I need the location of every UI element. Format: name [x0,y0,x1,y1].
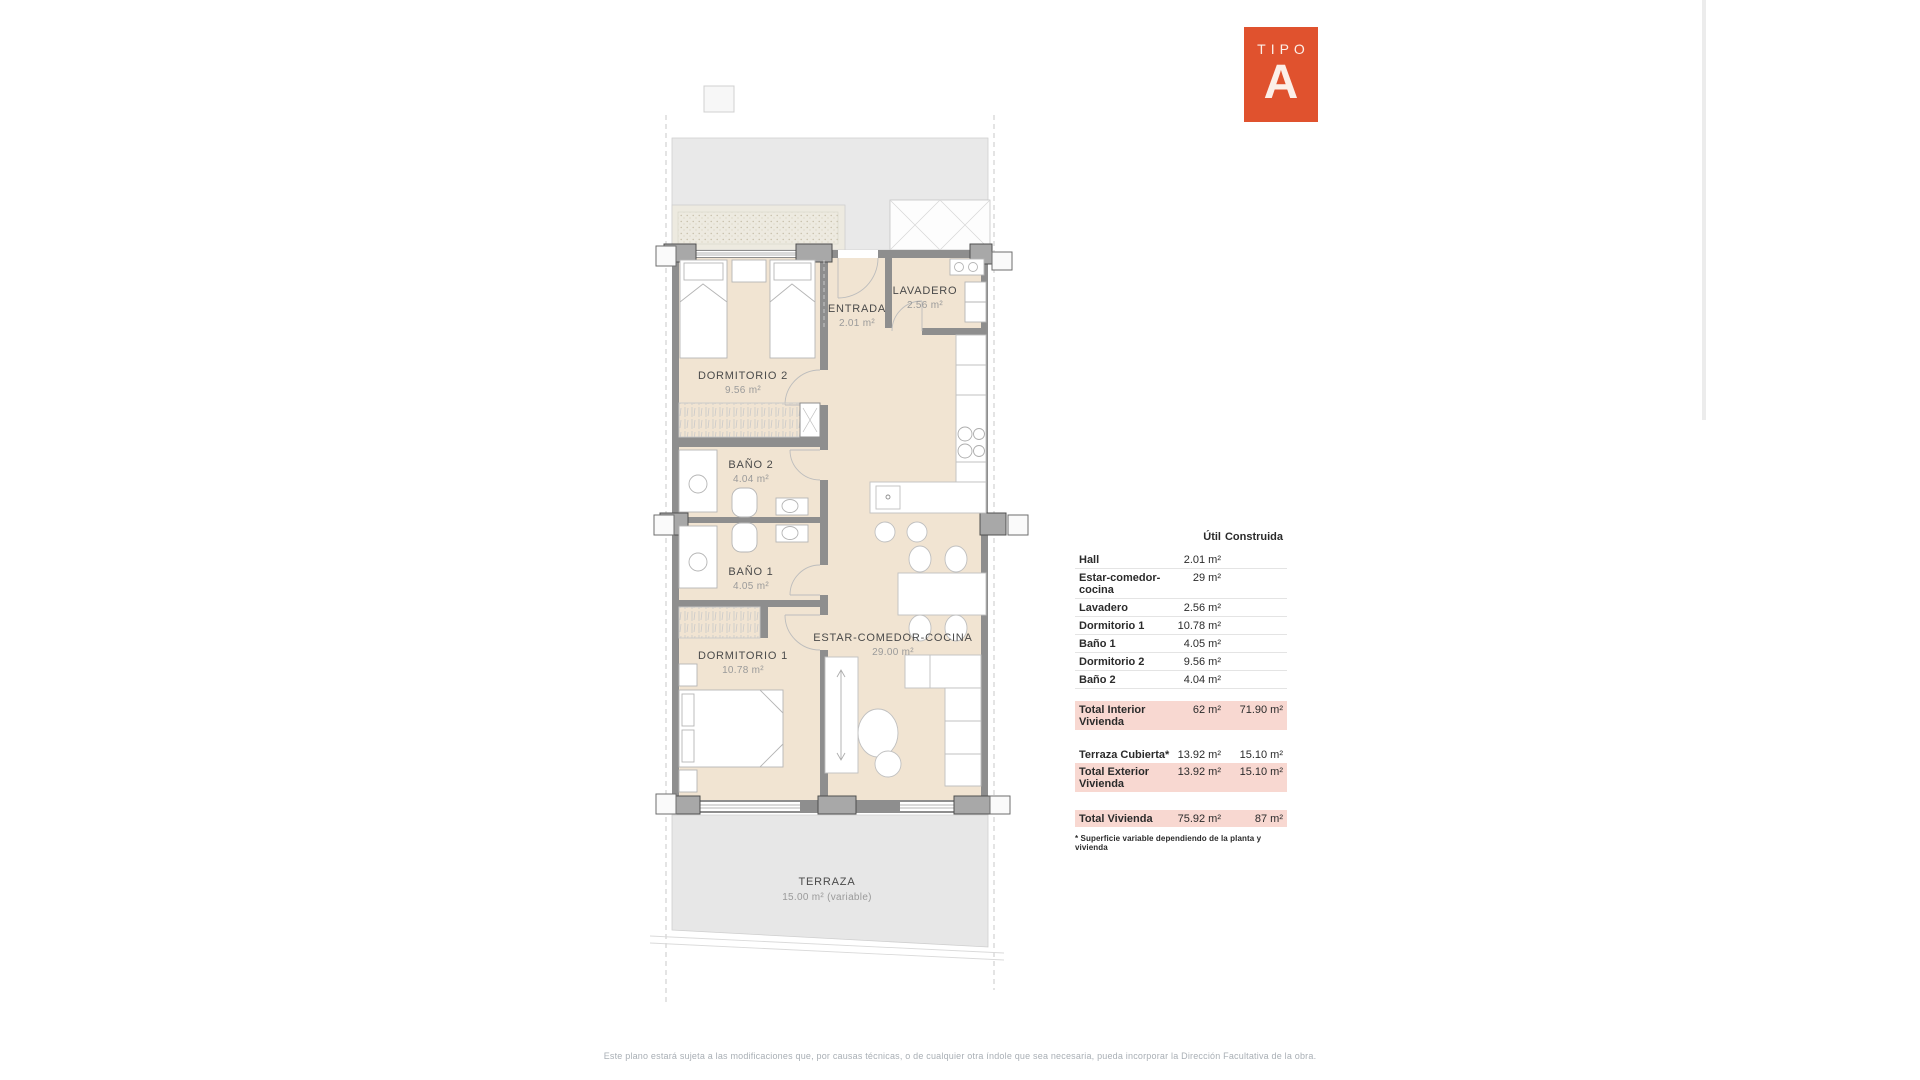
header-construida: Construida [1221,531,1283,543]
room-label-dormitorio2: DORMITORIO 2 [698,370,788,382]
table-footnote: * Superficie variable dependiendo de la … [1075,834,1287,852]
disclaimer-text: Este plano estará sujeta a las modificac… [0,1051,1920,1061]
floor-plan: DORMITORIO 2 9.56 m² ENTRADA 2.01 m² LAV… [620,70,1040,1020]
table-row: Dormitorio 1 10.78 m² [1075,617,1287,635]
bedroom2-wardrobe [679,403,820,437]
room-label-bano2: BAÑO 2 [728,458,773,471]
room-label-bano1: BAÑO 1 [728,565,773,578]
floor-plan-svg: DORMITORIO 2 9.56 m² ENTRADA 2.01 m² LAV… [620,70,1040,1020]
terraza-cubierta-row: Terraza Cubierta* 13.92 m² 15.10 m² [1075,746,1287,763]
page-edge-strip [1702,0,1706,420]
type-badge: TIPO A [1244,27,1318,122]
total-interior-row: Total Interior Vivienda 62 m² 71.90 m² [1075,701,1287,730]
kitchen-counter [956,335,986,482]
table-row: Dormitorio 2 9.56 m² [1075,653,1287,671]
room-label-lavadero: LAVADERO [893,285,958,297]
header-util: Útil [1171,531,1221,543]
bedroom1-wardrobe [679,607,760,638]
area-table: Útil Construida Hall 2.01 m² Estar-comed… [1075,528,1287,852]
room-label-estar: ESTAR-COMEDOR-COCINA [813,632,972,644]
table-row: Hall 2.01 m² [1075,551,1287,569]
room-area-lavadero: 2.56 m² [907,300,943,311]
table-row: Baño 1 4.05 m² [1075,635,1287,653]
table-row: Estar-comedor-cocina 29 m² [1075,569,1287,599]
roof-shaft [704,86,734,112]
room-label-terraza: TERRAZA [799,876,856,888]
type-badge-letter: A [1264,59,1299,107]
type-badge-word: TIPO [1252,41,1310,57]
room-area-entrada: 2.01 m² [839,318,875,329]
total-exterior-row: Total Exterior Vivienda 13.92 m² 15.10 m… [1075,763,1287,792]
room-label-dormitorio1: DORMITORIO 1 [698,650,788,662]
room-area-estar: 29.00 m² [872,647,914,658]
room-area-bano2: 4.04 m² [733,474,769,485]
table-row: Baño 2 4.04 m² [1075,671,1287,689]
room-area-dormitorio1: 10.78 m² [722,665,764,676]
area-table-header: Útil Construida [1075,528,1287,551]
skylight [890,200,990,250]
room-area-dormitorio2: 9.56 m² [725,385,761,396]
room-label-entrada: ENTRADA [828,303,886,315]
total-vivienda-row: Total Vivienda 75.92 m² 87 m² [1075,810,1287,827]
sideboard [825,657,858,773]
room-area-terraza: 15.00 m² (variable) [782,892,872,903]
room-area-bano1: 4.05 m² [733,581,769,592]
roof-area [672,138,990,250]
table-row: Lavadero 2.56 m² [1075,599,1287,617]
